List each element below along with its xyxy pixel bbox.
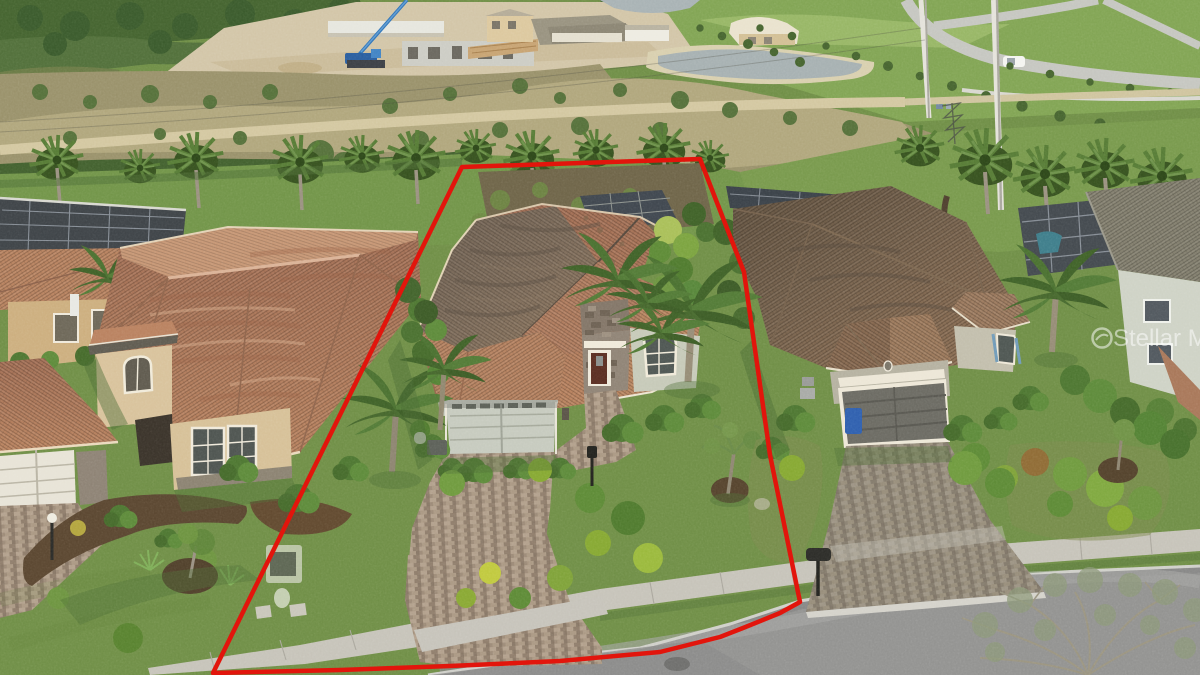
svg-text:Stellar MLS: Stellar MLS [1113, 325, 1200, 352]
